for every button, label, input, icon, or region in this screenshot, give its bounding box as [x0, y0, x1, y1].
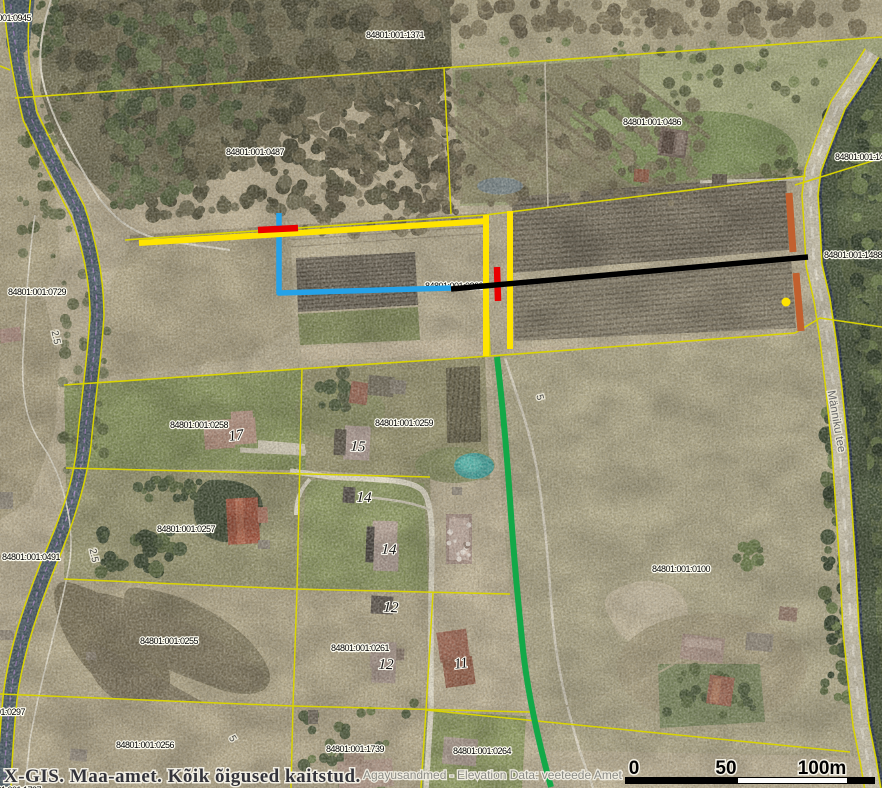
svg-text:50: 50 [715, 758, 736, 779]
svg-text:Agayusandmed - Elevation Data:: Agayusandmed - Elevation Data: veeteede … [363, 768, 622, 782]
svg-text:0: 0 [629, 758, 640, 779]
svg-text:84801:001:1489: 84801:001:1489 [835, 152, 882, 162]
svg-text:84801:001:0729: 84801:001:0729 [8, 287, 67, 297]
svg-text:84801:001:1739: 84801:001:1739 [326, 744, 385, 754]
svg-text:84801:001:0491: 84801:001:0491 [2, 552, 61, 562]
svg-text:84801:001:0264: 84801:001:0264 [453, 746, 512, 756]
svg-text:X-GIS. Maa-amet. Kõik õigused: X-GIS. Maa-amet. Kõik õigused kaitstud. [4, 766, 361, 787]
svg-text:84801:001:0257: 84801:001:0257 [157, 524, 216, 534]
svg-text:12: 12 [378, 657, 394, 674]
svg-text:84801:001:0945: 84801:001:0945 [0, 13, 32, 23]
svg-text:84801:001:0297: 84801:001:0297 [0, 707, 26, 717]
svg-text:14: 14 [356, 490, 372, 507]
svg-text:84801:001:1488: 84801:001:1488 [824, 250, 882, 260]
svg-text:84801:001:0100: 84801:001:0100 [652, 564, 711, 574]
svg-text:84801:001:0486: 84801:001:0486 [623, 117, 682, 127]
svg-text:84801:001:0487: 84801:001:0487 [226, 147, 285, 157]
svg-text:100m: 100m [798, 758, 847, 779]
svg-text:84801:001:0259: 84801:001:0259 [375, 418, 434, 428]
svg-text:12: 12 [383, 600, 399, 617]
svg-text:84801:001:0261: 84801:001:0261 [331, 643, 390, 653]
svg-text:84801:001:0258: 84801:001:0258 [170, 420, 229, 430]
svg-text:84801:001:0255: 84801:001:0255 [140, 636, 199, 646]
svg-text:11: 11 [453, 655, 469, 673]
svg-text:84801:001:0256: 84801:001:0256 [116, 740, 175, 750]
svg-text:15: 15 [350, 439, 366, 456]
svg-text:84801:001:1371: 84801:001:1371 [366, 30, 425, 40]
svg-text:14: 14 [381, 542, 397, 559]
